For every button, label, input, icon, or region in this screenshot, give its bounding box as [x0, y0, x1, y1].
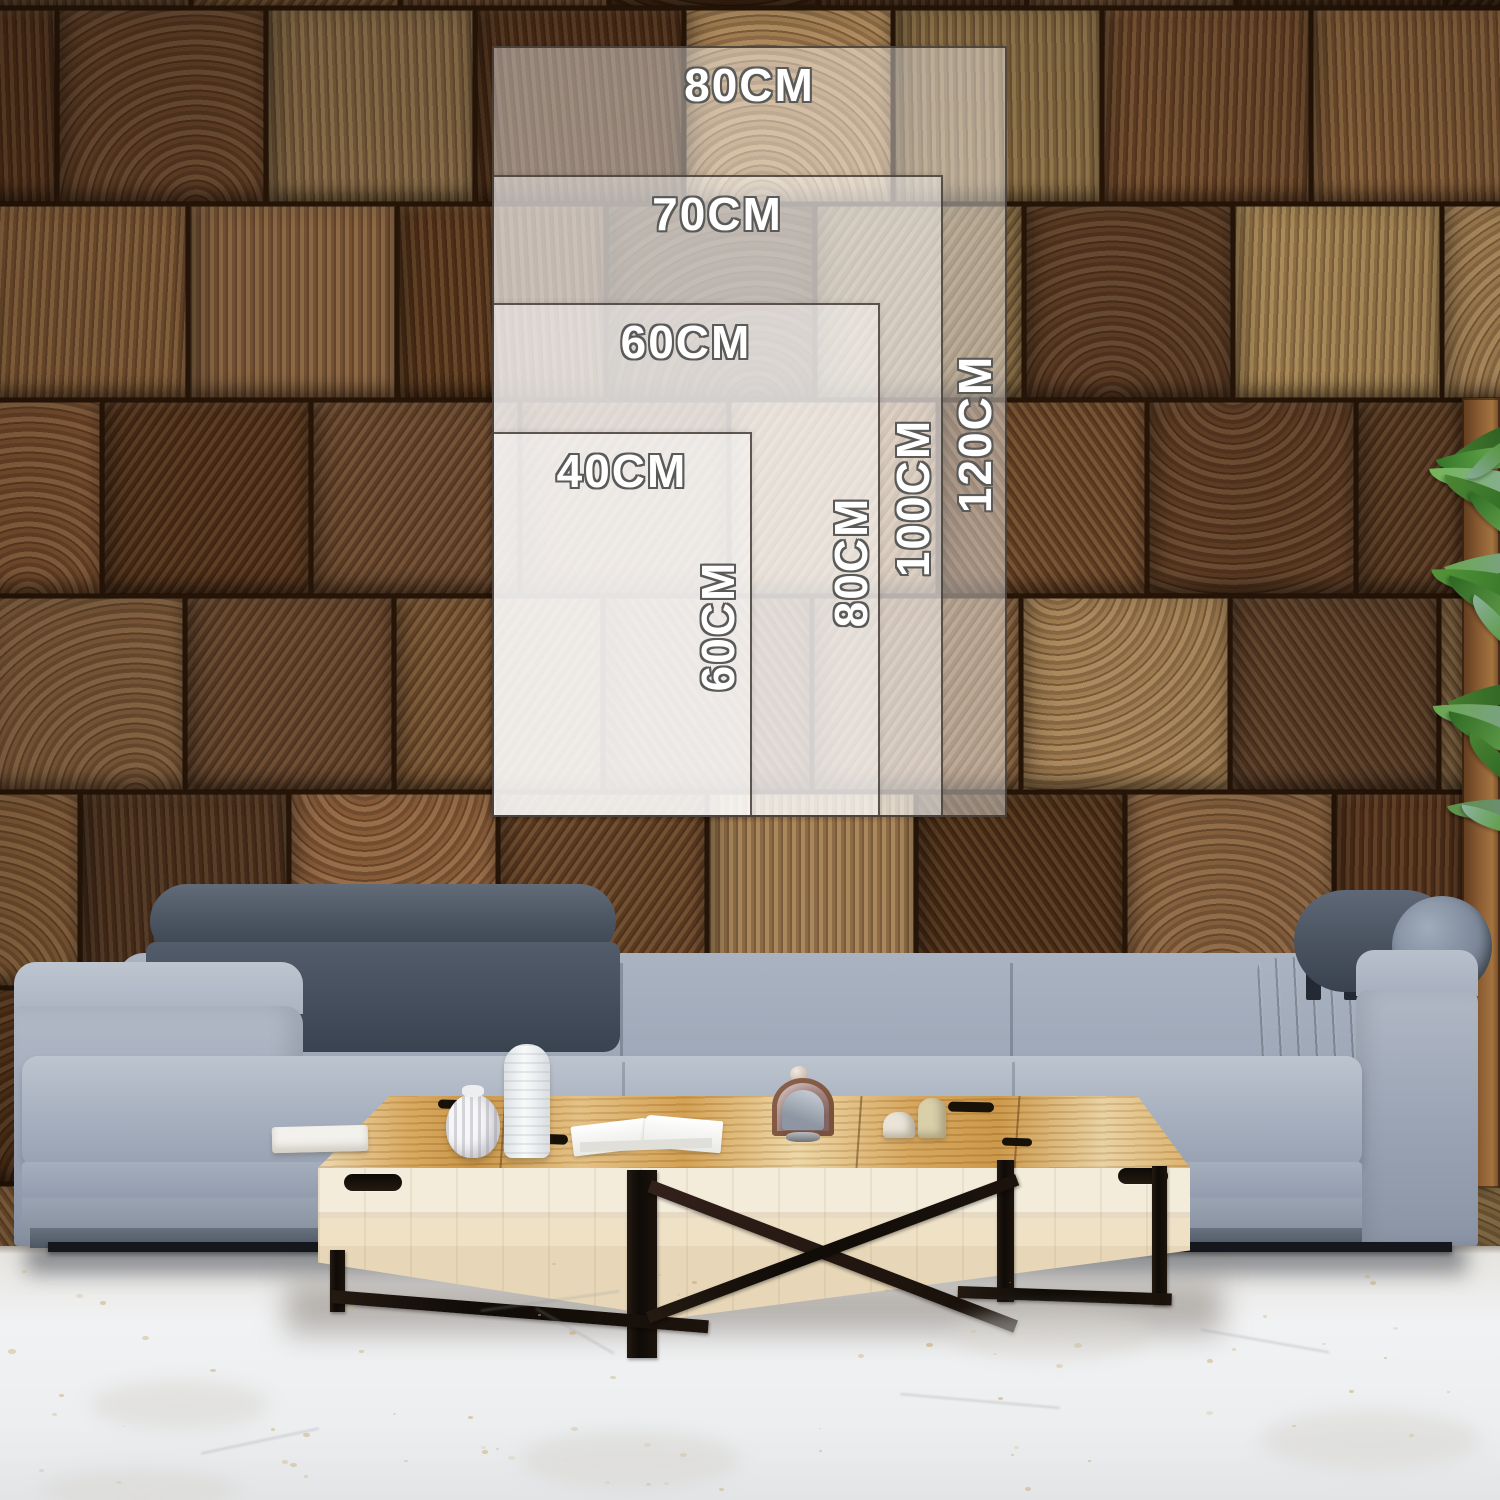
floor-blotch: [520, 1430, 740, 1490]
sofa-back-seam: [620, 963, 623, 1063]
candle-small: [883, 1112, 915, 1138]
floor-speck: [100, 1301, 106, 1305]
floor-speck: [998, 1397, 1003, 1400]
width-label-70cm: 70CM: [652, 187, 783, 241]
floor-speck: [858, 1354, 864, 1358]
sofa-back-seam: [1010, 963, 1013, 1063]
width-label-80cm: 80CM: [684, 58, 815, 112]
floor-speck: [677, 1294, 680, 1296]
floor-speck: [468, 1416, 473, 1419]
height-label-60cm: 60CM: [691, 561, 745, 692]
width-label-40cm: 40CM: [557, 444, 688, 498]
floor-speck: [819, 1450, 822, 1452]
floor-speck: [552, 1263, 556, 1265]
width-label-60cm: 60CM: [621, 315, 752, 369]
floor-speck: [926, 1343, 933, 1347]
floor-blotch: [90, 1380, 270, 1430]
sofa-arm-right: [1356, 990, 1478, 1246]
floor-speck: [508, 1456, 515, 1460]
floor-speck: [658, 1274, 661, 1276]
floor-speck: [76, 1294, 83, 1298]
floor-speck: [22, 1270, 27, 1273]
tall-white-vase: [504, 1044, 550, 1158]
floor-blotch: [950, 1310, 1150, 1360]
ribbed-vase: [446, 1094, 500, 1158]
living-room-size-mockup: 80CM 120CM 70CM 100CM 60CM 80CM 40CM 60C…: [0, 0, 1500, 1500]
floor-speck: [1349, 1390, 1354, 1393]
floor-speck: [538, 1314, 541, 1316]
floor-speck: [271, 1428, 275, 1431]
table-leg-post: [1152, 1166, 1167, 1304]
white-tray: [272, 1125, 369, 1154]
height-label-100cm: 100CM: [886, 419, 940, 577]
floor-speck: [1365, 1275, 1370, 1278]
floor-speck: [39, 1469, 44, 1472]
dome-glass: [782, 1090, 824, 1130]
floor-speck: [719, 1488, 724, 1491]
floor-speck: [359, 1350, 364, 1353]
floor-speck: [1370, 1281, 1376, 1285]
size-rect-40x60: 40CM 60CM: [492, 432, 752, 817]
dome-foot: [786, 1132, 820, 1142]
floor-speck: [1207, 1359, 1213, 1363]
floor-speck: [1447, 1391, 1450, 1393]
floor-speck: [1263, 1315, 1267, 1318]
dome-ornament: [772, 1066, 834, 1146]
floor-speck: [692, 1281, 697, 1284]
height-label-80cm: 80CM: [824, 497, 878, 628]
floor-speck: [59, 1394, 64, 1397]
table-leg-post: [627, 1170, 657, 1358]
table-handle-left: [344, 1174, 402, 1191]
floor-speck: [1232, 1348, 1236, 1351]
floor-speck: [8, 1349, 16, 1354]
floor-speck: [1014, 1446, 1019, 1449]
floor-speck: [304, 1475, 308, 1478]
candle-large: [918, 1098, 946, 1138]
floor-speck: [393, 1413, 396, 1415]
floor-blotch: [1260, 1410, 1480, 1470]
floor-speck: [1025, 1487, 1031, 1491]
floor-speck: [1088, 1460, 1091, 1462]
floor-speck: [348, 1306, 355, 1310]
table-top-slot: [948, 1102, 994, 1113]
table-top-slot: [1002, 1137, 1032, 1146]
height-label-120cm: 120CM: [948, 355, 1002, 513]
